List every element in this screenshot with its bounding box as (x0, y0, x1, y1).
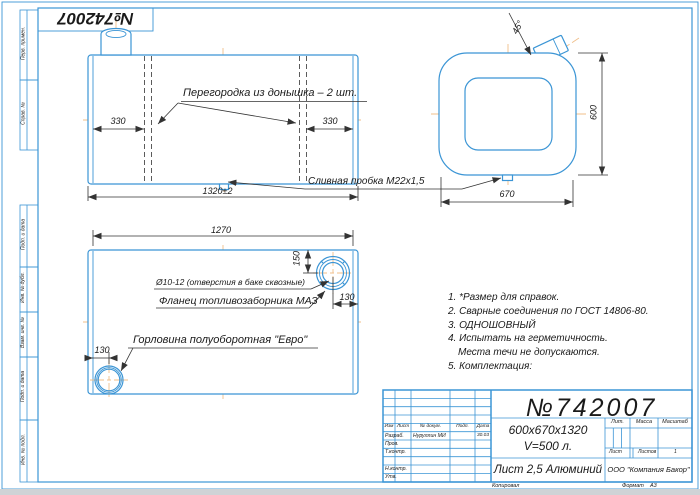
note-line: Места течи не допускаются. (448, 346, 649, 360)
dim-1270: 1270 (204, 226, 238, 235)
flange-callout: Фланец топливозаборника МАЗ (159, 296, 318, 307)
margin-field-podp-data-1: Подп. и дата (21, 204, 26, 266)
note-line: 1. *Размер для справок. (448, 291, 649, 305)
dim-130-right: 130 (334, 293, 360, 302)
page-edge-shadow (0, 489, 700, 495)
titleblock-volume: V=500 л. (491, 440, 605, 452)
titleblock-developer-name: Нуруллин МИ (413, 434, 446, 439)
filler-neck-callout: Горловина полуоборотная "Евро" (133, 335, 307, 346)
titleblock-col-izm: Изм (383, 425, 395, 430)
technical-notes: 1. *Размер для справок. 2. Сварные соеди… (448, 291, 649, 374)
note-line: 2. Сварные соединения по ГОСТ 14806-80. (448, 305, 649, 319)
titleblock-col-docnum: № докум. (411, 425, 450, 430)
note-line: 3. ОДНОШОВНЫЙ (448, 319, 649, 333)
tank-end-view (431, 35, 586, 186)
titleblock-sheets-label: Листов (638, 450, 656, 455)
margin-field-inv-podl: Инв. № подл. (21, 419, 26, 481)
dim-130-left: 130 (89, 346, 115, 355)
titleblock-sheet-label: Лист (609, 450, 622, 455)
margin-field-vzam-inv: Взам. инв. № (21, 310, 26, 355)
holes-callout: Ø10-12 (отверстия в баке сквозные) (156, 278, 305, 287)
dim-150: 150 (293, 245, 302, 273)
tank-side-view (83, 245, 363, 399)
margin-field-inv-dubl: Инв. № дубл. (21, 265, 26, 310)
titleblock-row-prov: Пров. (385, 442, 399, 447)
dim-670: 670 (493, 190, 521, 199)
note-line: 5. Комплектация: (448, 360, 649, 374)
titleblock-company: ООО "Компания Бакор" (605, 466, 692, 474)
titleblock-sheets-value: 1 (674, 450, 677, 455)
partition-callout: Перегородка из донышка – 2 шт. (183, 88, 357, 99)
margin-field-sprav-no: Справ. № (21, 79, 26, 149)
titleblock-size: 600х670х1320 (491, 424, 605, 436)
titleblock-developer-date: 30.03 (477, 434, 489, 439)
margin-field-perv-primen: Перв. примен. (21, 9, 26, 79)
titleblock-col-podp: Подп. (450, 425, 475, 430)
titleblock-scale-label: Масштаб (658, 420, 692, 426)
titleblock-col-list: Лист (395, 425, 411, 430)
titleblock-doc-number: №742007 (491, 396, 692, 421)
margin-field-podp-data-2: Подп. и дата (21, 355, 26, 418)
dim-600: 600 (590, 98, 599, 128)
titleblock-col-data: Дата (475, 425, 491, 430)
tank-top-view (83, 20, 363, 195)
titleblock-lit-label: Лит. (605, 420, 630, 426)
note-line: 4. Испытать на герметичность. (448, 332, 649, 346)
titleblock-row-nkontr: Н.контр. (385, 467, 407, 472)
dim-1320: 1320±2 (190, 187, 245, 196)
titleblock-material: Лист 2,5 Алюминий (491, 465, 605, 477)
titleblock-row-tkontr: Т.контр. (385, 450, 406, 455)
stamp-number-flipped: №742007 (38, 10, 153, 27)
drain-plug-callout: Сливная пробка М22х1,5 (308, 177, 425, 187)
drawing-sheet: №742007 Перегородка из донышка – 2 шт. 3… (0, 0, 700, 495)
dim-330-left: 330 (104, 117, 132, 126)
titleblock-mass-label: Масса (630, 420, 658, 426)
titleblock-row-utv: Утв. (385, 475, 397, 480)
dim-330-right: 330 (316, 117, 344, 126)
titleblock-row-razrab: Разраб. (385, 434, 404, 439)
